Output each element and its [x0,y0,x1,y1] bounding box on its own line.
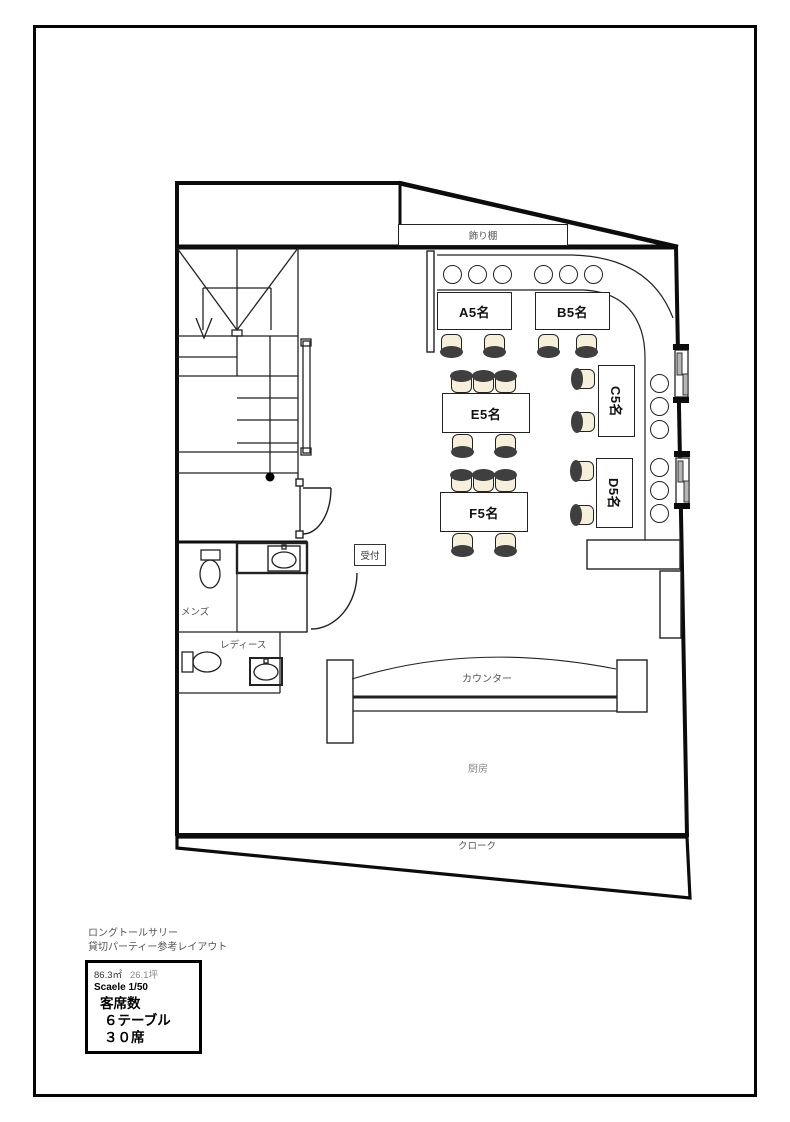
bench-stool [650,397,669,416]
chair [495,434,516,454]
bench-stool [559,265,578,284]
table-f-label: F5名 [469,503,499,522]
stair-rail-post [266,473,275,482]
mens-toilet [200,550,220,588]
cloak-label: クローク [437,838,517,852]
chair [576,334,597,354]
bench-stool [468,265,487,284]
chair [573,461,594,481]
ladies-sink [250,658,282,685]
chair [538,334,559,354]
table-e: E5名 [442,393,530,433]
scale-label: Scaele 1/50 [94,982,193,993]
ladies-toilet [182,652,221,672]
entry-door-arc [311,573,357,629]
bench-stool [443,265,462,284]
plan-title-line1: ロングトールサリー [88,924,178,939]
chair [495,373,516,393]
table-b-label: B5名 [557,302,588,321]
bench-stool [650,481,669,500]
bench-stool [534,265,553,284]
seating-header: 客席数 [100,996,193,1013]
bench-stool [650,504,669,523]
area-info: 86.3㎡26.1坪 [94,967,193,981]
floor-plan-page: 飾り棚 受付 A5名 B5名 C5名 D5名 E5名 F5名 [0,0,790,1122]
table-a-label: A5名 [459,302,490,321]
bench-stool [493,265,512,284]
chair [441,334,462,354]
chair [451,472,472,492]
chair [452,533,473,553]
chair [495,533,516,553]
table-d: D5名 [596,458,633,528]
window [674,451,690,509]
bench-stool [584,265,603,284]
reception-box: 受付 [354,544,386,566]
kitchen-label: 厨房 [450,760,506,775]
stairs-down-arrow [196,318,212,338]
table-b: B5名 [535,292,610,330]
bench-stool [650,458,669,477]
plan-title-line2: 貸切パーティー参考レイアウト [88,938,227,953]
chair [452,434,473,454]
ladies-room-label: レディース [220,637,266,651]
floor-plan-drawing [0,0,790,1122]
mens-room-label: メンズ [181,604,209,618]
plan-info-box: 86.3㎡26.1坪 Scaele 1/50 客席数 ６テーブル ３０席 [85,960,202,1054]
decor-shelf-label: 飾り棚 [469,228,498,242]
chair [495,472,516,492]
chair [573,505,594,525]
area-tsubo: 26.1坪 [130,970,158,981]
decor-shelf-box: 飾り棚 [398,224,568,246]
chair [451,373,472,393]
chair [574,412,595,432]
table-a: A5名 [437,292,512,330]
window [673,344,689,403]
chair [484,334,505,354]
service-shelf [587,540,681,638]
stairs [177,248,311,482]
table-d-label: D5名 [605,477,624,508]
table-f: F5名 [440,492,528,532]
seating-tables: ６テーブル [104,1013,193,1030]
chair [473,373,494,393]
sink-bowl [272,552,296,568]
chair [574,369,595,389]
seating-seats: ３０席 [104,1030,193,1047]
area-sqm: 86.3㎡ [94,970,122,981]
chair [473,472,494,492]
bench-stool [650,374,669,393]
reception-label: 受付 [360,548,379,562]
table-e-label: E5名 [471,404,501,423]
table-c: C5名 [598,365,635,437]
counter-label: カウンター [442,670,532,685]
stair-door [296,479,331,538]
bench-stool [650,420,669,439]
table-c-label: C5名 [607,385,626,416]
